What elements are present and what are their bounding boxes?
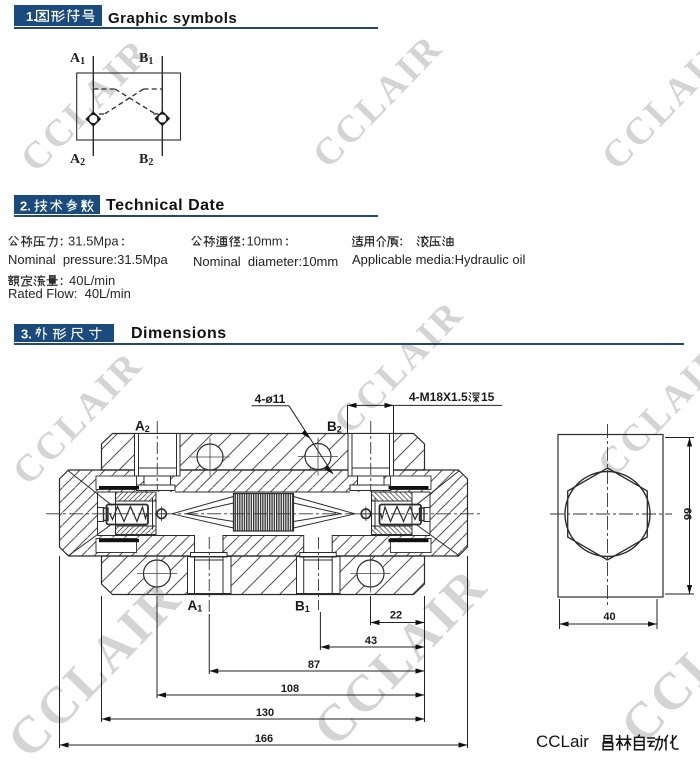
svg-text:130: 130 bbox=[256, 707, 274, 719]
svg-text:4-M18X1.5: 4-M18X1.5 bbox=[409, 390, 468, 404]
svg-text:40: 40 bbox=[603, 611, 615, 623]
svg-text:15: 15 bbox=[481, 390, 495, 404]
svg-text:43: 43 bbox=[365, 635, 377, 647]
svg-text:A2: A2 bbox=[135, 419, 150, 435]
svg-text:A1: A1 bbox=[70, 51, 85, 67]
svg-text:B2: B2 bbox=[327, 419, 342, 435]
svg-text:A1: A1 bbox=[188, 598, 203, 614]
svg-text:22: 22 bbox=[390, 610, 402, 622]
svg-text:A2: A2 bbox=[70, 152, 85, 168]
svg-text:4-ø11: 4-ø11 bbox=[255, 392, 286, 406]
svg-text:108: 108 bbox=[281, 683, 299, 695]
svg-text:3.: 3. bbox=[21, 327, 32, 342]
svg-text:87: 87 bbox=[308, 659, 320, 671]
svg-text:B1: B1 bbox=[139, 51, 153, 67]
svg-text:1.: 1. bbox=[26, 9, 37, 24]
svg-text:B1: B1 bbox=[295, 599, 310, 615]
svg-text:31.5Mpa: 31.5Mpa bbox=[68, 234, 119, 249]
svg-text:166: 166 bbox=[255, 733, 273, 745]
svg-text:66: 66 bbox=[681, 508, 693, 520]
svg-text:B2: B2 bbox=[139, 152, 153, 168]
svg-text:10mm: 10mm bbox=[247, 234, 283, 249]
svg-text:2.: 2. bbox=[20, 199, 31, 214]
